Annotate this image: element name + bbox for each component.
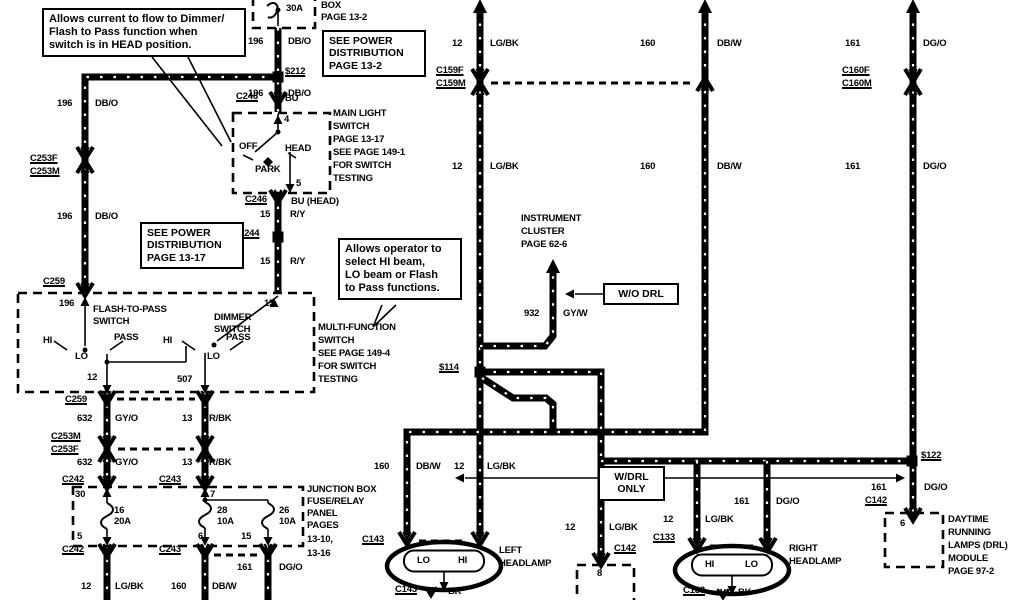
- diagram-label: C253M: [51, 432, 81, 442]
- diagram-label: 26: [279, 506, 289, 516]
- diagram-label: C160F: [842, 66, 870, 76]
- diagram-label: DG/O: [924, 483, 947, 493]
- diagram-label: SEE PAGE 149-4: [318, 349, 390, 359]
- diagram-label: FOR SWITCH: [318, 362, 376, 372]
- diagram-label: C159F: [436, 66, 464, 76]
- diagram-label: LG/BK: [115, 582, 144, 592]
- diagram-label: 161: [734, 497, 749, 507]
- splice-s114-label: $114: [439, 363, 459, 373]
- diagram-label: DB/O: [95, 99, 118, 109]
- diagram-label: PAGE 62-6: [521, 240, 567, 250]
- diagram-label: PAGE 13-2: [321, 13, 367, 23]
- diagram-label: 15: [260, 210, 270, 220]
- diagram-label: C253M: [30, 167, 60, 177]
- diagram-label: DG/O: [923, 39, 946, 49]
- diagram-label: LG/BK: [490, 162, 519, 172]
- diagram-label: DB/W: [212, 582, 237, 592]
- diagram-label: 12: [454, 462, 464, 472]
- diagram-label: 12: [87, 373, 97, 383]
- diagram-label: C133: [683, 586, 705, 596]
- diagram-label: 13-10,: [307, 535, 333, 545]
- diagram-label: 6: [198, 532, 203, 542]
- diagram-label: SEE PAGE 149-1: [333, 148, 405, 158]
- diagram-label: DB/O: [95, 212, 118, 222]
- diagram-label: 30A: [286, 4, 303, 14]
- diagram-label: 7: [210, 490, 215, 500]
- diagram-label: LG/BK: [705, 515, 734, 525]
- diagram-label: TESTING: [318, 375, 358, 385]
- diagram-label: PASS: [114, 333, 138, 343]
- diagram-label: MULTI-FUNCTION: [318, 323, 396, 333]
- diagram-label: 196: [59, 299, 74, 309]
- note-see-power-distribution-1: SEE POWERDISTRIBUTIONPAGE 13-2: [322, 30, 426, 77]
- diagram-label: C143: [362, 535, 384, 545]
- diagram-label: FOR SWITCH: [333, 161, 391, 171]
- diagram-label: HI: [43, 336, 52, 346]
- diagram-label: 13-16: [307, 549, 330, 559]
- diagram-label: GY/W: [563, 309, 588, 319]
- diagram-label: 161: [871, 483, 886, 493]
- diagram-label: PASS: [226, 333, 250, 343]
- diagram-label: LEFT: [499, 546, 522, 556]
- diagram-label: C253F: [51, 445, 79, 455]
- diagram-label: DB/W: [717, 162, 742, 172]
- diagram-label: 13: [182, 458, 192, 468]
- note-wo-drl: W/O DRL: [603, 283, 679, 305]
- diagram-label: SWITCH: [333, 122, 369, 132]
- diagram-label: FLASH-TO-PASS: [93, 305, 167, 315]
- diagram-label: C142: [865, 496, 887, 506]
- diagram-label: C242: [62, 545, 84, 555]
- diagram-label: DG/O: [279, 563, 302, 573]
- diagram-label: HI: [705, 560, 714, 570]
- diagram-label: C243: [159, 475, 181, 485]
- diagram-label: TESTING: [333, 174, 373, 184]
- diagram-label: 12: [452, 39, 462, 49]
- note-current-flow: Allows current to flow to Dimmer/Flash t…: [42, 8, 246, 57]
- diagram-label: LG/BK: [490, 39, 519, 49]
- diagram-label: PARK: [255, 165, 280, 175]
- diagram-label: LO: [417, 556, 430, 566]
- diagram-label: HEADLAMP: [789, 557, 841, 567]
- diagram-label: C259: [65, 395, 87, 405]
- diagram-label: R/BK: [209, 414, 231, 424]
- diagram-label: DAYTIME: [948, 515, 988, 525]
- diagram-label: LO: [207, 352, 220, 362]
- diagram-label: 28: [217, 506, 227, 516]
- diagram-label: 15: [264, 299, 274, 309]
- diagram-label: 160: [171, 582, 186, 592]
- diagram-label: 196: [57, 212, 72, 222]
- diagram-label: C246: [245, 195, 267, 205]
- splice-s212-label: $212: [285, 67, 305, 77]
- diagram-label: 10A: [217, 517, 234, 527]
- diagram-label: 30: [75, 490, 85, 500]
- diagram-label: PANEL: [307, 509, 338, 519]
- diagram-label: LO: [75, 352, 88, 362]
- diagram-label: DB/W: [416, 462, 441, 472]
- diagram-label: C160M: [842, 79, 872, 89]
- diagram-label: C253F: [30, 154, 58, 164]
- diagram-label: R/Y: [290, 257, 305, 267]
- diagram-label: 160: [640, 39, 655, 49]
- diagram-label: R/Y: [290, 210, 305, 220]
- diagram-label: RIGHT: [789, 544, 818, 554]
- diagram-label: HI: [458, 556, 467, 566]
- diagram-label: GY/O: [115, 414, 138, 424]
- diagram-label: R/BK: [209, 458, 231, 468]
- diagram-label: 12: [452, 162, 462, 172]
- diagram-label: 5: [296, 179, 301, 189]
- diagram-label: PAGES: [307, 521, 339, 531]
- diagram-label: HEAD: [285, 144, 311, 154]
- diagram-label: DB/W: [717, 39, 742, 49]
- diagram-label: BK: [738, 588, 751, 598]
- diagram-label: RUNNING: [948, 528, 991, 538]
- diagram-label: C133: [653, 533, 675, 543]
- diagram-label: LO: [745, 560, 758, 570]
- diagram-label: LAMPS (DRL): [948, 541, 1008, 551]
- diagram-label: 5: [77, 532, 82, 542]
- diagram-label: 160: [374, 462, 389, 472]
- diagram-label: LG/BK: [609, 523, 638, 533]
- splice-s122-label: $122: [921, 451, 941, 461]
- note-operator: Allows operator toselect HI beam,LO beam…: [338, 238, 462, 300]
- diagram-label: JUNCTION BOX: [307, 485, 376, 495]
- diagram-label: C259: [43, 277, 65, 287]
- diagram-label: 196: [57, 99, 72, 109]
- diagram-label: DIMMER: [214, 313, 251, 323]
- diagram-label: 932: [524, 309, 539, 319]
- diagram-label: FUSE/RELAY: [307, 497, 364, 507]
- note-see-power-distribution-2: SEE POWERDISTRIBUTIONPAGE 13-17: [140, 222, 244, 269]
- diagram-label: DB/O: [288, 37, 311, 47]
- diagram-label: 161: [845, 39, 860, 49]
- diagram-label: 13: [182, 414, 192, 424]
- diagram-label: BK: [448, 587, 461, 597]
- diagram-label: C142: [614, 544, 636, 554]
- diagram-label: 10A: [279, 517, 296, 527]
- diagram-label: PAGE 13-17: [333, 135, 384, 145]
- diagram-label: HI: [163, 336, 172, 346]
- diagram-label: CLUSTER: [521, 227, 564, 237]
- diagram-label: 12: [81, 582, 91, 592]
- wiring-diagram: 30ABOXPAGE 13-2196DB/O$212196DB/OC246BU1…: [0, 0, 1024, 600]
- diagram-label: BOX: [321, 1, 341, 11]
- diagram-label: BU (HEAD): [291, 197, 339, 207]
- diagram-label: OFF: [239, 142, 257, 152]
- diagram-label: 12: [663, 515, 673, 525]
- diagram-label: 8: [597, 569, 602, 579]
- diagram-label: 16: [114, 506, 124, 516]
- diagram-label: 507: [177, 375, 192, 385]
- diagram-label: 6: [900, 519, 905, 529]
- diagram-label: 20A: [114, 517, 131, 527]
- diagram-label: 160: [640, 162, 655, 172]
- diagram-label: INSTRUMENT: [521, 214, 581, 224]
- diagram-label: C243: [159, 545, 181, 555]
- diagram-label: SWITCH: [318, 336, 354, 346]
- diagram-label: 632: [77, 414, 92, 424]
- diagram-label: 15: [241, 532, 251, 542]
- diagram-label: DG/O: [776, 497, 799, 507]
- diagram-label: 4: [284, 115, 289, 125]
- diagram-label: C143: [395, 585, 417, 595]
- diagram-label: GY/O: [115, 458, 138, 468]
- diagram-label: BU: [285, 94, 298, 104]
- diagram-label: 12: [565, 523, 575, 533]
- diagram-label: 15: [260, 257, 270, 267]
- note-wdrl-only: W/DRLONLY: [598, 466, 665, 501]
- diagram-label: HEADLAMP: [499, 559, 551, 569]
- diagram-labels: 30ABOXPAGE 13-2196DB/O$212196DB/OC246BU1…: [0, 0, 1024, 600]
- diagram-label: C242: [62, 475, 84, 485]
- diagram-label: 196: [248, 37, 263, 47]
- diagram-label: SWITCH: [93, 317, 129, 327]
- diagram-label: 161: [845, 162, 860, 172]
- diagram-label: 632: [77, 458, 92, 468]
- diagram-label: PAGE 97-2: [948, 567, 994, 577]
- diagram-label: C159M: [436, 79, 466, 89]
- diagram-label: MAIN LIGHT: [333, 109, 386, 119]
- diagram-label: C246: [236, 92, 258, 102]
- diagram-label: 161: [237, 563, 252, 573]
- diagram-label: DG/O: [923, 162, 946, 172]
- diagram-label: MODULE: [948, 554, 988, 564]
- diagram-label: LG/BK: [487, 462, 516, 472]
